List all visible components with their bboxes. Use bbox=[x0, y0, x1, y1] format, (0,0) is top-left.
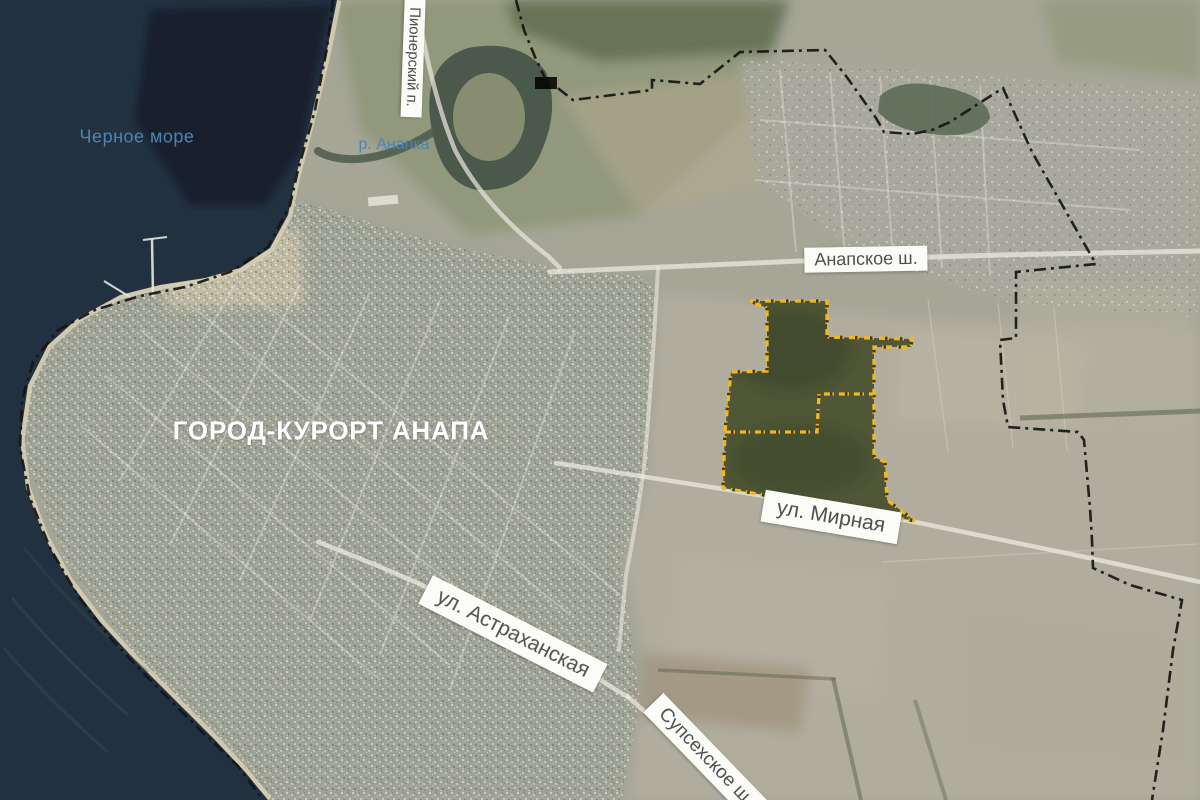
map-canvas bbox=[0, 0, 1200, 800]
satellite-map: Черное море р. Анапка ГОРОД-КУРОРТ АНАПА… bbox=[0, 0, 1200, 800]
river-island bbox=[453, 73, 525, 161]
river-label: р. Анапка bbox=[358, 136, 429, 154]
road-label-anapskoe: Анапское ш. bbox=[804, 246, 928, 273]
sea-label: Черное море bbox=[80, 127, 195, 148]
road-label-pionersky: Пионерский п. bbox=[400, 0, 425, 117]
city-label: ГОРОД-КУРОРТ АНАПА bbox=[173, 416, 490, 447]
